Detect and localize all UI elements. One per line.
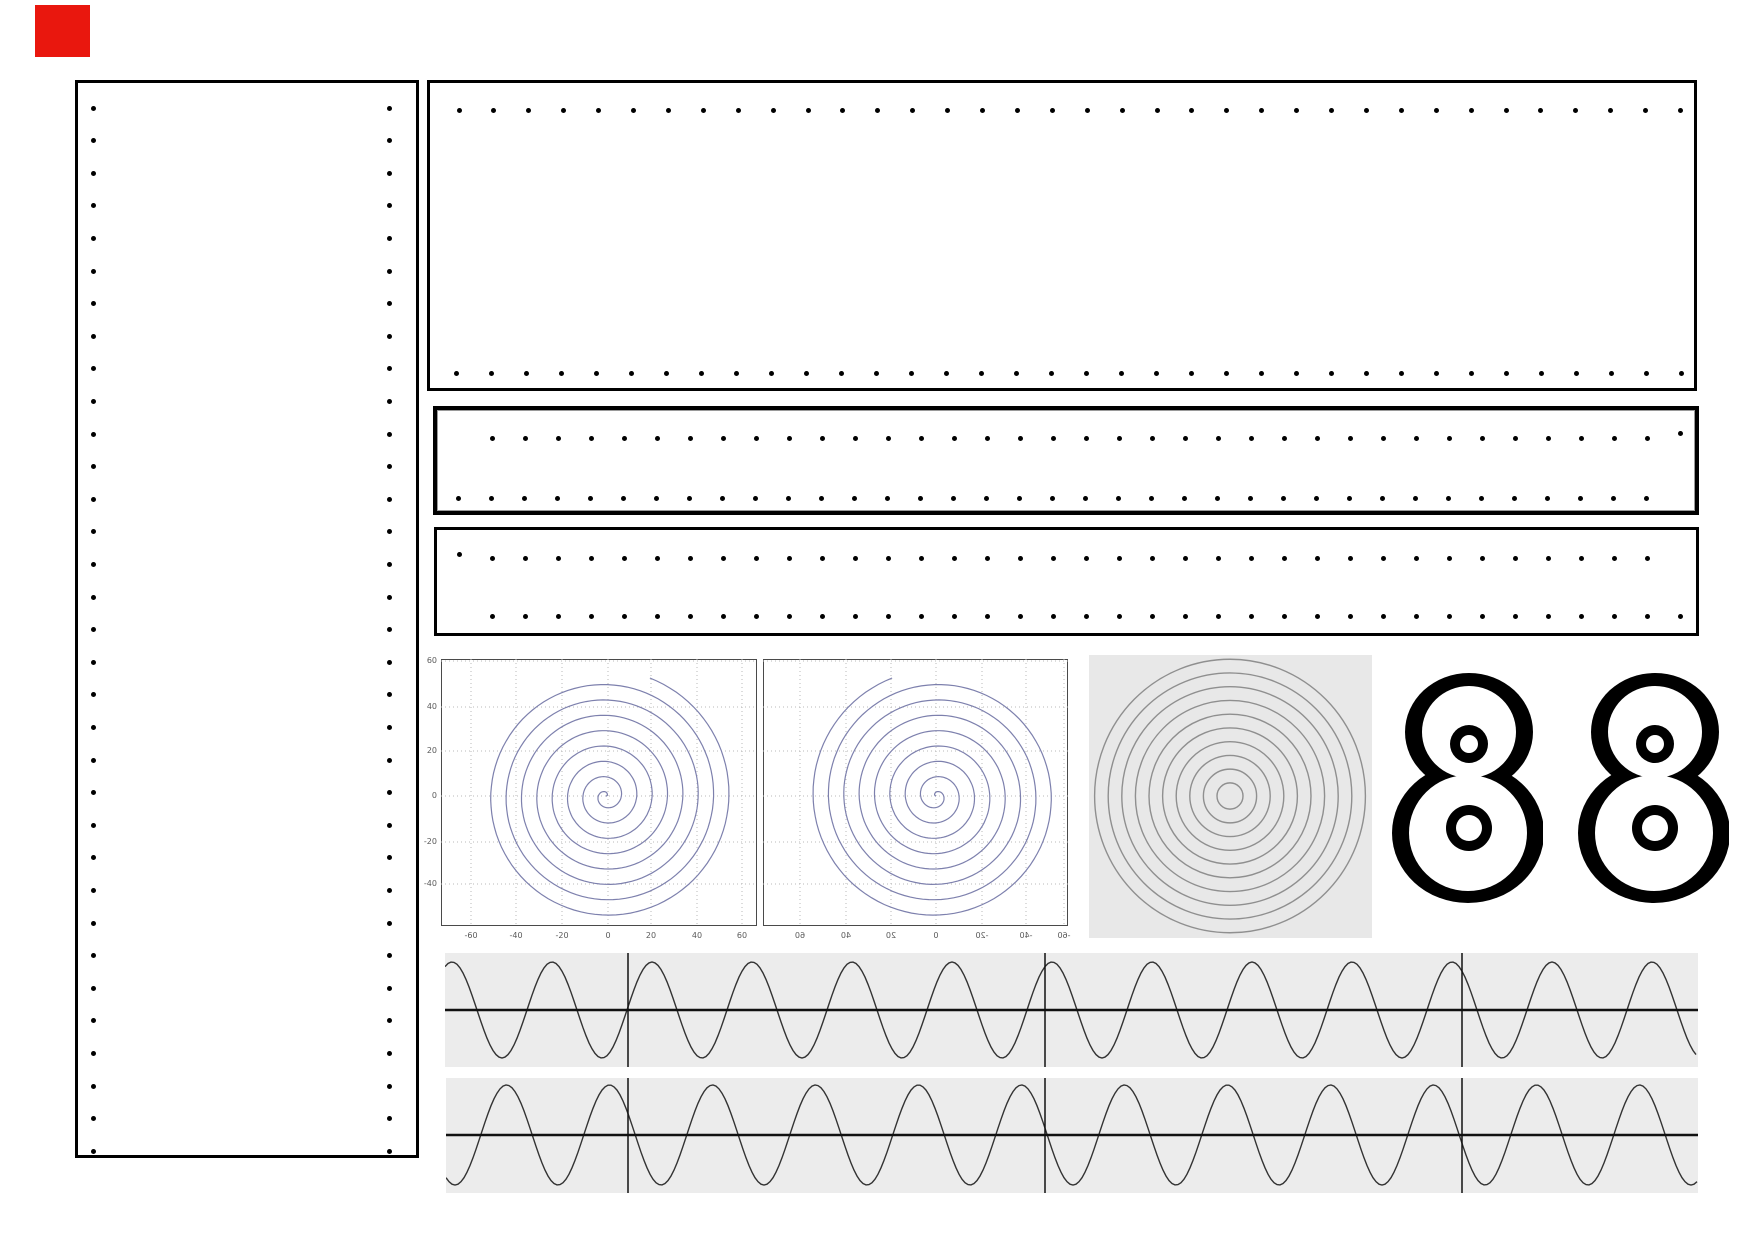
perforation-dot <box>736 108 741 113</box>
perforation-dot <box>622 614 627 619</box>
spiral-plot-left-x-tick-label: -60 <box>464 932 477 940</box>
perforation-dot <box>387 1084 392 1089</box>
perforation-dot <box>621 496 626 501</box>
perforation-dot <box>1469 371 1474 376</box>
perforation-dot <box>387 301 392 306</box>
perforation-dot <box>1050 496 1055 501</box>
perforation-dot <box>1216 614 1221 619</box>
perforation-dot <box>523 436 528 441</box>
perforation-dot <box>944 371 949 376</box>
perforation-dot <box>754 556 759 561</box>
perforation-dot <box>1329 371 1334 376</box>
spiral-plot-right-x-tick-label: 60 <box>795 932 805 940</box>
perforation-dot <box>655 436 660 441</box>
perforation-dot <box>91 334 96 339</box>
perforation-dot <box>1314 496 1319 501</box>
perforation-dot <box>853 556 858 561</box>
perforation-dot <box>1434 108 1439 113</box>
perforation-dot <box>387 1149 392 1154</box>
perforation-dot <box>387 888 392 893</box>
perforation-dot <box>1183 436 1188 441</box>
perforation-dot <box>387 1018 392 1023</box>
perforation-dot <box>589 614 594 619</box>
perforation-dot <box>629 371 634 376</box>
perforation-dot <box>664 371 669 376</box>
perforation-dot <box>1051 614 1056 619</box>
perforation-dot <box>1414 614 1419 619</box>
perforation-dot <box>387 203 392 208</box>
perforation-dot <box>91 1116 96 1121</box>
perforation-dot <box>688 614 693 619</box>
perforation-dot <box>1644 496 1649 501</box>
spiral-plot-right-mirrored: 6040200-20-40-60 <box>763 659 1068 948</box>
perforation-dot <box>787 556 792 561</box>
perforation-dot <box>1364 371 1369 376</box>
perforation-dot <box>1447 556 1452 561</box>
perforation-dot <box>979 371 984 376</box>
perforation-dot <box>753 496 758 501</box>
perforation-dot <box>91 106 96 111</box>
perforation-dot <box>1399 108 1404 113</box>
perforation-dot <box>91 432 96 437</box>
perforation-dot <box>91 921 96 926</box>
perforation-dot <box>387 562 392 567</box>
perforation-dot <box>699 371 704 376</box>
perforation-dot <box>1504 108 1509 113</box>
perforation-dot <box>91 1051 96 1056</box>
perforation-dot <box>1579 436 1584 441</box>
perforation-dot <box>91 497 96 502</box>
perforation-dot <box>754 436 759 441</box>
perforation-dot <box>721 556 726 561</box>
perforation-dot <box>387 595 392 600</box>
perforation-dot <box>1611 496 1616 501</box>
spiral-plot-left-x-tick-label: 60 <box>737 932 747 940</box>
perforation-dot <box>734 371 739 376</box>
perforation-dot <box>1678 431 1683 436</box>
perforation-dot <box>1150 556 1155 561</box>
perforation-dot <box>91 366 96 371</box>
perforation-dot <box>1249 556 1254 561</box>
perforation-dot <box>1645 436 1650 441</box>
perforation-dot <box>1546 436 1551 441</box>
perforation-dot <box>1329 108 1334 113</box>
perforation-dot <box>1051 436 1056 441</box>
perforation-dot <box>91 138 96 143</box>
perforation-dot <box>1609 371 1614 376</box>
perforation-dot <box>1117 614 1122 619</box>
perforation-dot <box>526 108 531 113</box>
perforation-dot <box>918 496 923 501</box>
perforation-dot <box>721 614 726 619</box>
perforation-dot <box>1282 614 1287 619</box>
perforation-dot <box>1539 371 1544 376</box>
perforation-dot <box>457 552 462 557</box>
perforation-dot <box>622 556 627 561</box>
perforation-dot <box>1120 108 1125 113</box>
perforation-dot <box>1183 556 1188 561</box>
perforation-dot <box>721 436 726 441</box>
perforation-dot <box>387 627 392 632</box>
perforation-dot <box>387 855 392 860</box>
perforation-dot <box>1117 556 1122 561</box>
perforation-dot <box>1513 614 1518 619</box>
perforation-dot <box>655 614 660 619</box>
perforation-dot <box>840 108 845 113</box>
perforation-dot <box>387 790 392 795</box>
perforation-dot <box>522 496 527 501</box>
spiral-plot-left-y-tick-label: 40 <box>411 703 437 711</box>
perforation-dot <box>555 496 560 501</box>
perforation-dot <box>654 496 659 501</box>
perforation-dot <box>1348 436 1353 441</box>
red-marker <box>35 5 90 57</box>
spiral-plot-left-x-tick-label: -40 <box>509 932 522 940</box>
spiral-plot-right-x-tick-label: 20 <box>886 932 896 940</box>
perforation-dot <box>886 436 891 441</box>
perforation-dot <box>91 823 96 828</box>
perforation-dot <box>1546 614 1551 619</box>
perforation-dot <box>490 556 495 561</box>
perforation-dot <box>561 108 566 113</box>
perforation-dot <box>457 108 462 113</box>
dotted-panel-top <box>427 80 1697 391</box>
perforation-dot <box>1643 108 1648 113</box>
perforation-dot <box>387 138 392 143</box>
perforation-dot <box>1294 371 1299 376</box>
perforation-dot <box>91 301 96 306</box>
perforation-dot <box>688 436 693 441</box>
spiral-plot-left-y-tick-label: -20 <box>411 838 437 846</box>
perforation-dot <box>945 108 950 113</box>
perforation-dot <box>820 556 825 561</box>
perforation-dot <box>1678 108 1683 113</box>
perforation-dot <box>1380 496 1385 501</box>
perforation-dot <box>559 371 564 376</box>
perforation-dot <box>1315 556 1320 561</box>
perforation-dot <box>1573 108 1578 113</box>
perforation-dot <box>489 371 494 376</box>
perforation-dot <box>1644 371 1649 376</box>
perforation-dot <box>588 496 593 501</box>
perforation-dot <box>91 399 96 404</box>
perforation-dot <box>387 464 392 469</box>
perforation-dot <box>631 108 636 113</box>
concentric-rings-panel <box>1089 655 1372 938</box>
perforation-dot <box>596 108 601 113</box>
spiral-plot-right-x-tick-label: -40 <box>1019 932 1032 940</box>
perforation-dot <box>1224 371 1229 376</box>
perforation-dot <box>910 108 915 113</box>
perforation-dot <box>819 496 824 501</box>
perforation-dot <box>1381 436 1386 441</box>
perforation-dot <box>1579 556 1584 561</box>
perforation-dot <box>1414 556 1419 561</box>
perforation-dot <box>91 464 96 469</box>
perforation-dot <box>1480 556 1485 561</box>
perforation-dot <box>1224 108 1229 113</box>
perforation-dot <box>1469 108 1474 113</box>
perforation-dot <box>1189 108 1194 113</box>
perforation-dot <box>1117 436 1122 441</box>
perforation-dot <box>387 334 392 339</box>
perforation-dot <box>1348 614 1353 619</box>
spiral-plot-right-x-tick-label: 40 <box>841 932 851 940</box>
perforation-dot <box>874 371 879 376</box>
perforation-dot <box>984 496 989 501</box>
perforation-dot <box>666 108 671 113</box>
perforation-dot <box>1381 614 1386 619</box>
perforation-dot <box>1084 556 1089 561</box>
perforation-dot <box>556 556 561 561</box>
perforation-dot <box>952 436 957 441</box>
perforation-dot <box>1018 556 1023 561</box>
perforation-dot <box>490 436 495 441</box>
perforation-dot <box>1282 556 1287 561</box>
perforation-dot <box>1347 496 1352 501</box>
spiral-plot-left-y-tick-label: -40 <box>411 880 437 888</box>
perforation-dot <box>1183 614 1188 619</box>
perforation-dot <box>1608 108 1613 113</box>
perforation-dot <box>985 614 990 619</box>
spiral-plot-right-x-tick-label: 0 <box>933 932 938 940</box>
perforation-dot <box>1259 108 1264 113</box>
perforation-dot <box>1150 436 1155 441</box>
perforation-dot <box>1574 371 1579 376</box>
perforation-dot <box>1294 108 1299 113</box>
spiral-plot-left-x-tick-label: 40 <box>692 932 702 940</box>
perforation-dot <box>1645 614 1650 619</box>
perforation-dot <box>387 758 392 763</box>
perforation-dot <box>1050 108 1055 113</box>
perforation-dot <box>387 269 392 274</box>
perforation-dot <box>490 614 495 619</box>
perforation-dot <box>1155 108 1160 113</box>
spiral-plot-left-x-tick-label: 20 <box>646 932 656 940</box>
perforation-dot <box>1545 496 1550 501</box>
perforation-dot <box>91 692 96 697</box>
perforation-dot <box>622 436 627 441</box>
perforation-dot <box>720 496 725 501</box>
perforation-dot <box>853 436 858 441</box>
perforation-dot <box>91 1018 96 1023</box>
perforation-dot <box>91 236 96 241</box>
perforation-dot <box>687 496 692 501</box>
perforation-dot <box>387 660 392 665</box>
perforation-dot <box>951 496 956 501</box>
perforation-dot <box>853 614 858 619</box>
perforation-dot <box>1189 371 1194 376</box>
perforation-dot <box>91 855 96 860</box>
perforation-dot <box>804 371 809 376</box>
perforation-dot <box>1579 614 1584 619</box>
spiral-plot-left: -60-40-2002040606040200-20-40 <box>441 659 757 948</box>
perforation-dot <box>1216 436 1221 441</box>
perforation-dot <box>1480 436 1485 441</box>
perforation-dot <box>1513 436 1518 441</box>
perforation-dot <box>454 371 459 376</box>
perforation-dot <box>980 108 985 113</box>
perforation-dot <box>852 496 857 501</box>
perforation-dot <box>556 614 561 619</box>
spiral-plot-left-x-tick-label: 0 <box>605 932 610 940</box>
perforation-dot <box>1447 614 1452 619</box>
sine-strip-top <box>445 953 1698 1067</box>
perforation-dot <box>1612 614 1617 619</box>
perforation-dot <box>1578 496 1583 501</box>
perforation-dot <box>91 725 96 730</box>
perforation-dot <box>1085 108 1090 113</box>
dotted-panel-bottom <box>434 527 1699 636</box>
perforation-dot <box>655 556 660 561</box>
perforation-dot <box>387 692 392 697</box>
perforation-dot <box>91 953 96 958</box>
perforation-dot <box>1399 371 1404 376</box>
perforation-dot <box>589 436 594 441</box>
perforation-dot <box>387 921 392 926</box>
perforation-dot <box>387 432 392 437</box>
perforation-dot <box>1259 371 1264 376</box>
perforation-dot <box>1315 436 1320 441</box>
spiral-plot-right-x-tick-label: -20 <box>975 932 988 940</box>
perforation-dot <box>1513 556 1518 561</box>
perforation-dot <box>387 725 392 730</box>
perforation-dot <box>1480 614 1485 619</box>
perforation-dot <box>91 171 96 176</box>
perforation-dot <box>1015 108 1020 113</box>
perforation-dot <box>886 556 891 561</box>
perforation-dot <box>1281 496 1286 501</box>
perforation-dot <box>1364 108 1369 113</box>
perforation-dot <box>387 986 392 991</box>
perforation-dot <box>489 496 494 501</box>
perforation-dot <box>1504 371 1509 376</box>
perforation-dot <box>1084 436 1089 441</box>
perforation-dot <box>919 556 924 561</box>
perforation-dot <box>524 371 529 376</box>
perforation-dot <box>1083 496 1088 501</box>
perforation-dot <box>1381 556 1386 561</box>
perforation-dot <box>1446 496 1451 501</box>
perforation-dot <box>839 371 844 376</box>
perforation-dot <box>919 436 924 441</box>
perforation-dot <box>820 614 825 619</box>
perforation-dot <box>1348 556 1353 561</box>
perforation-dot <box>909 371 914 376</box>
perforation-dot <box>688 556 693 561</box>
perforation-dot <box>91 627 96 632</box>
perforation-dot <box>885 496 890 501</box>
perforation-dot <box>1249 614 1254 619</box>
spiral-plot-left-y-tick-label: 0 <box>411 792 437 800</box>
perforation-dot <box>491 108 496 113</box>
perforation-dot <box>1248 496 1253 501</box>
perforation-dot <box>1216 556 1221 561</box>
perforation-dot <box>456 496 461 501</box>
perforation-dot <box>1612 436 1617 441</box>
sine-strip-bottom <box>446 1078 1698 1193</box>
perforation-dot <box>1084 371 1089 376</box>
perforation-dot <box>1084 614 1089 619</box>
perforation-dot <box>387 953 392 958</box>
perforation-dot <box>91 269 96 274</box>
perforation-dot <box>91 1084 96 1089</box>
perforation-dot <box>1612 556 1617 561</box>
spiral-plot-left-y-tick-label: 20 <box>411 747 437 755</box>
perforation-dot <box>91 888 96 893</box>
perforation-dot <box>769 371 774 376</box>
perforation-dot <box>91 1149 96 1154</box>
perforation-dot <box>754 614 759 619</box>
perforation-dot <box>1538 108 1543 113</box>
perforation-dot <box>387 1116 392 1121</box>
perforation-dot <box>1116 496 1121 501</box>
perforation-dot <box>787 436 792 441</box>
spiral-plot-right-x-tick-label: -60 <box>1057 932 1070 940</box>
perforation-dot <box>701 108 706 113</box>
perforation-dot <box>1447 436 1452 441</box>
perforation-dot <box>952 614 957 619</box>
perforation-dot <box>91 758 96 763</box>
perforation-dot <box>589 556 594 561</box>
perforation-dot <box>387 529 392 534</box>
perforation-dot <box>1119 371 1124 376</box>
perforation-dot <box>91 595 96 600</box>
perforation-dot <box>886 614 891 619</box>
perforation-dot <box>1479 496 1484 501</box>
perforation-dot <box>1150 614 1155 619</box>
perforation-dot <box>1017 496 1022 501</box>
perforation-dot <box>1014 371 1019 376</box>
perforation-dot <box>1679 371 1684 376</box>
perforation-dot <box>1018 436 1023 441</box>
perforation-dot <box>594 371 599 376</box>
perforation-dot <box>91 529 96 534</box>
left-perforated-panel <box>75 80 419 1158</box>
perforation-dot <box>1546 556 1551 561</box>
perforation-dot <box>91 203 96 208</box>
perforation-dot <box>771 108 776 113</box>
perforation-dot <box>1049 371 1054 376</box>
perforation-dot <box>556 436 561 441</box>
perforation-dot <box>91 790 96 795</box>
perforation-dot <box>387 1051 392 1056</box>
perforation-dot <box>1414 436 1419 441</box>
perforation-dot <box>1154 371 1159 376</box>
perforation-dot <box>387 106 392 111</box>
perforation-dot <box>919 614 924 619</box>
perforation-dot <box>820 436 825 441</box>
spiral-plot-left-y-tick-label: 60 <box>411 657 437 665</box>
perforation-dot <box>787 614 792 619</box>
perforation-dot <box>1678 614 1683 619</box>
perforation-dot <box>1182 496 1187 501</box>
perforation-dot <box>1249 436 1254 441</box>
perforation-dot <box>1018 614 1023 619</box>
perforation-dot <box>1215 496 1220 501</box>
perforation-dot <box>387 366 392 371</box>
perforation-dot <box>1512 496 1517 501</box>
perforation-dot <box>1149 496 1154 501</box>
perforation-dot <box>387 171 392 176</box>
perforation-dot <box>875 108 880 113</box>
perforation-dot <box>1282 436 1287 441</box>
perforation-dot <box>806 108 811 113</box>
perforation-dot <box>387 497 392 502</box>
perforation-dot <box>387 823 392 828</box>
perforation-dot <box>91 660 96 665</box>
perforation-dot <box>985 556 990 561</box>
